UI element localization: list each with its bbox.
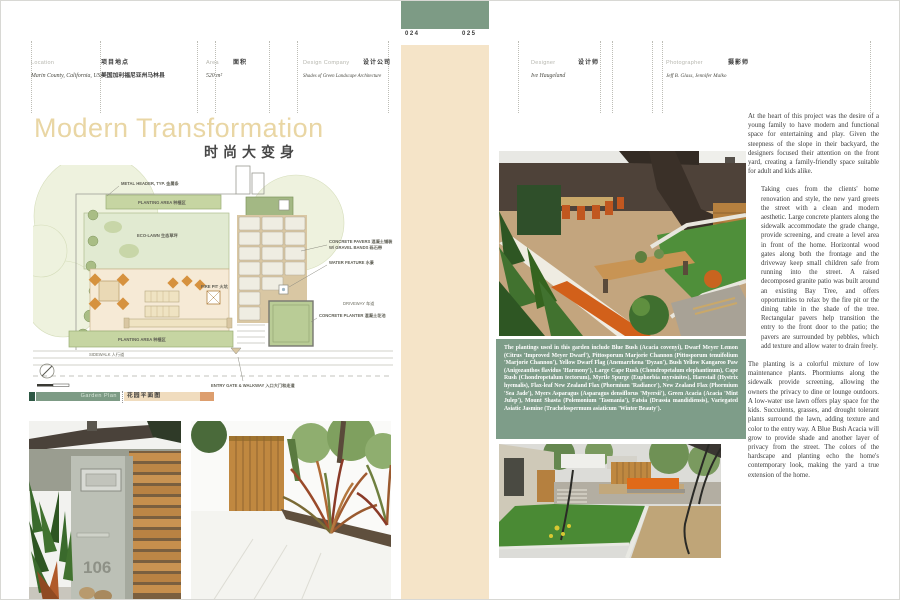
plant-list-caption: The plantings used in this garden includ… xyxy=(496,339,746,439)
window-door xyxy=(504,458,524,496)
location-label-en: Location xyxy=(31,59,101,68)
company-value: Shades of Green Landscape Architecture xyxy=(303,74,381,79)
plan-label-water: WATER FEATURE 水景 xyxy=(329,259,375,266)
orange-plant xyxy=(704,270,722,288)
bar-chip-dark-green xyxy=(29,392,35,401)
designer-label-zh: 设计师 xyxy=(578,60,599,66)
neighbor-house xyxy=(561,454,605,468)
area-value: 520 m² xyxy=(206,73,222,79)
photographer-label-en: Photographer xyxy=(666,59,728,68)
table-leg xyxy=(603,279,608,293)
plan-label-driveway: DRIVEWAY 车道 xyxy=(343,300,375,307)
planting-dark xyxy=(517,185,561,235)
dining-table-top xyxy=(557,197,613,206)
house-outline xyxy=(236,166,250,194)
dining-table xyxy=(99,281,119,301)
bench-end xyxy=(227,318,232,328)
lawn-shrub xyxy=(104,221,122,233)
photo-backyard-patio xyxy=(499,151,746,336)
photographer-label-zh: 摄影师 xyxy=(728,60,749,66)
column-rule xyxy=(662,41,663,113)
stairs xyxy=(237,325,265,343)
plan-label-eco-lawn: ECO-LAWN 生态草坪 xyxy=(137,232,179,239)
eco-lawn-area xyxy=(84,213,229,269)
info-block-location: Location项目地点 Marin County, California, U… xyxy=(31,55,199,81)
bench-base xyxy=(627,489,685,493)
column-rule xyxy=(612,41,613,113)
plan-label-sidewalk: SIDEWALK 人行道 xyxy=(89,351,125,358)
photographer-value: Jeff B. Glass, Jennifer Malko xyxy=(666,73,727,79)
page-title-zh: 时尚大变身 xyxy=(204,142,299,162)
north-arrow-needle xyxy=(42,366,52,376)
water-feature-basin xyxy=(282,288,285,291)
lawn-shrub xyxy=(119,244,139,258)
bar-chip-tan xyxy=(200,392,214,401)
plan-label-metal-header: METAL HEADER, TYP. 金属条 xyxy=(121,180,180,187)
scale-bar xyxy=(53,384,69,387)
pillar-shade xyxy=(125,456,133,600)
photo-backyard-lawn xyxy=(499,444,721,558)
area-label-zh: 面积 xyxy=(233,60,247,66)
house-number: 106 xyxy=(83,558,111,577)
designer-value: Ive Haugeland xyxy=(531,73,565,79)
location-value-en: Marin County, California, USA xyxy=(31,72,101,81)
garden-site-plan: METAL HEADER, TYP. 金属条 PLANTING AREA 种植区… xyxy=(33,165,393,393)
info-block-photographer: Photographer摄影师 Jeff B. Glass, Jennifer … xyxy=(666,55,756,81)
article-text-column: At the heart of this project was the des… xyxy=(748,112,879,489)
lawn xyxy=(499,504,647,548)
location-value-zh: 美国加利福尼亚州马林县 xyxy=(101,73,165,79)
bench xyxy=(129,319,227,327)
shed-box xyxy=(279,200,289,210)
orange-bench xyxy=(627,478,679,489)
info-block-designer: Designer设计师 Ive Haugeland xyxy=(531,55,611,81)
book-spread: 024 025 Location项目地点 Marin County, Calif… xyxy=(0,0,900,600)
page-number-left: 024 xyxy=(405,31,420,37)
table-leg xyxy=(683,261,688,275)
pillar-ledge xyxy=(77,533,109,537)
gutter-cream-band xyxy=(401,45,489,600)
bar-dotted-divider xyxy=(122,391,123,403)
plan-label-entry: ENTRY GATE & WALKWAY 入口大门和走道 xyxy=(211,382,295,389)
article-paragraph-2: Taking cues from the clients' home renov… xyxy=(748,185,879,351)
plan-label-planter: CONCRETE PLANTER 混凝土花池 xyxy=(319,312,386,319)
page-number-right: 025 xyxy=(462,31,477,37)
company-label-zh: 设计公司 xyxy=(363,60,391,66)
plan-label-pavers-1: CONCRETE PAVERS 混凝土铺装 xyxy=(329,238,393,245)
scale-bar xyxy=(37,384,53,387)
plan-label-planting-bottom: PLANTING AREA 种植区 xyxy=(118,336,167,343)
plan-label-planting-top: PLANTING AREA 种植区 xyxy=(138,199,187,206)
leader-line xyxy=(238,357,243,381)
article-paragraph-3: The planting is a colorful mixture of lo… xyxy=(748,360,879,480)
potted-cactus xyxy=(654,249,664,259)
plan-label-fire-pit: FIRE PIT 火坑 xyxy=(201,283,229,290)
company-label-en: Design Company xyxy=(303,59,363,68)
info-block-company: Design Company设计公司 Shades of Green Lands… xyxy=(303,55,393,81)
mailbox-slot xyxy=(86,474,116,486)
stone xyxy=(79,587,95,599)
garden-plan-label-en: Garden Plan xyxy=(36,392,120,401)
info-block-area: Area面积 520 m² xyxy=(206,55,266,81)
concrete-planter xyxy=(269,301,313,346)
gutter-color-block xyxy=(401,1,489,29)
designer-label-en: Designer xyxy=(531,59,578,68)
column-rule xyxy=(652,41,653,113)
column-rule xyxy=(269,41,270,113)
column-rule xyxy=(870,41,871,113)
column-rule xyxy=(297,41,298,113)
bench-end xyxy=(124,318,129,328)
plan-label-pavers-2: W/ GRAVEL BANDS 砾石带 xyxy=(329,244,383,251)
wood-fence-panel xyxy=(229,436,284,511)
potted-cactus xyxy=(635,251,647,263)
sidewalk-lines xyxy=(33,351,393,365)
chimney xyxy=(87,421,97,431)
photo-phormium-planter xyxy=(191,421,391,600)
location-label-zh: 项目地点 xyxy=(101,60,129,66)
area-label-en: Area xyxy=(206,59,233,68)
article-paragraph-1: At the heart of this project was the des… xyxy=(748,112,879,176)
page-title-en: Modern Transformation xyxy=(34,113,324,144)
wood-gate xyxy=(537,470,555,502)
column-rule xyxy=(518,41,519,113)
horizontal-slat-fence xyxy=(129,451,181,600)
shrub-highlight xyxy=(632,298,650,316)
photo-entry-pillar: 106 xyxy=(29,421,181,600)
